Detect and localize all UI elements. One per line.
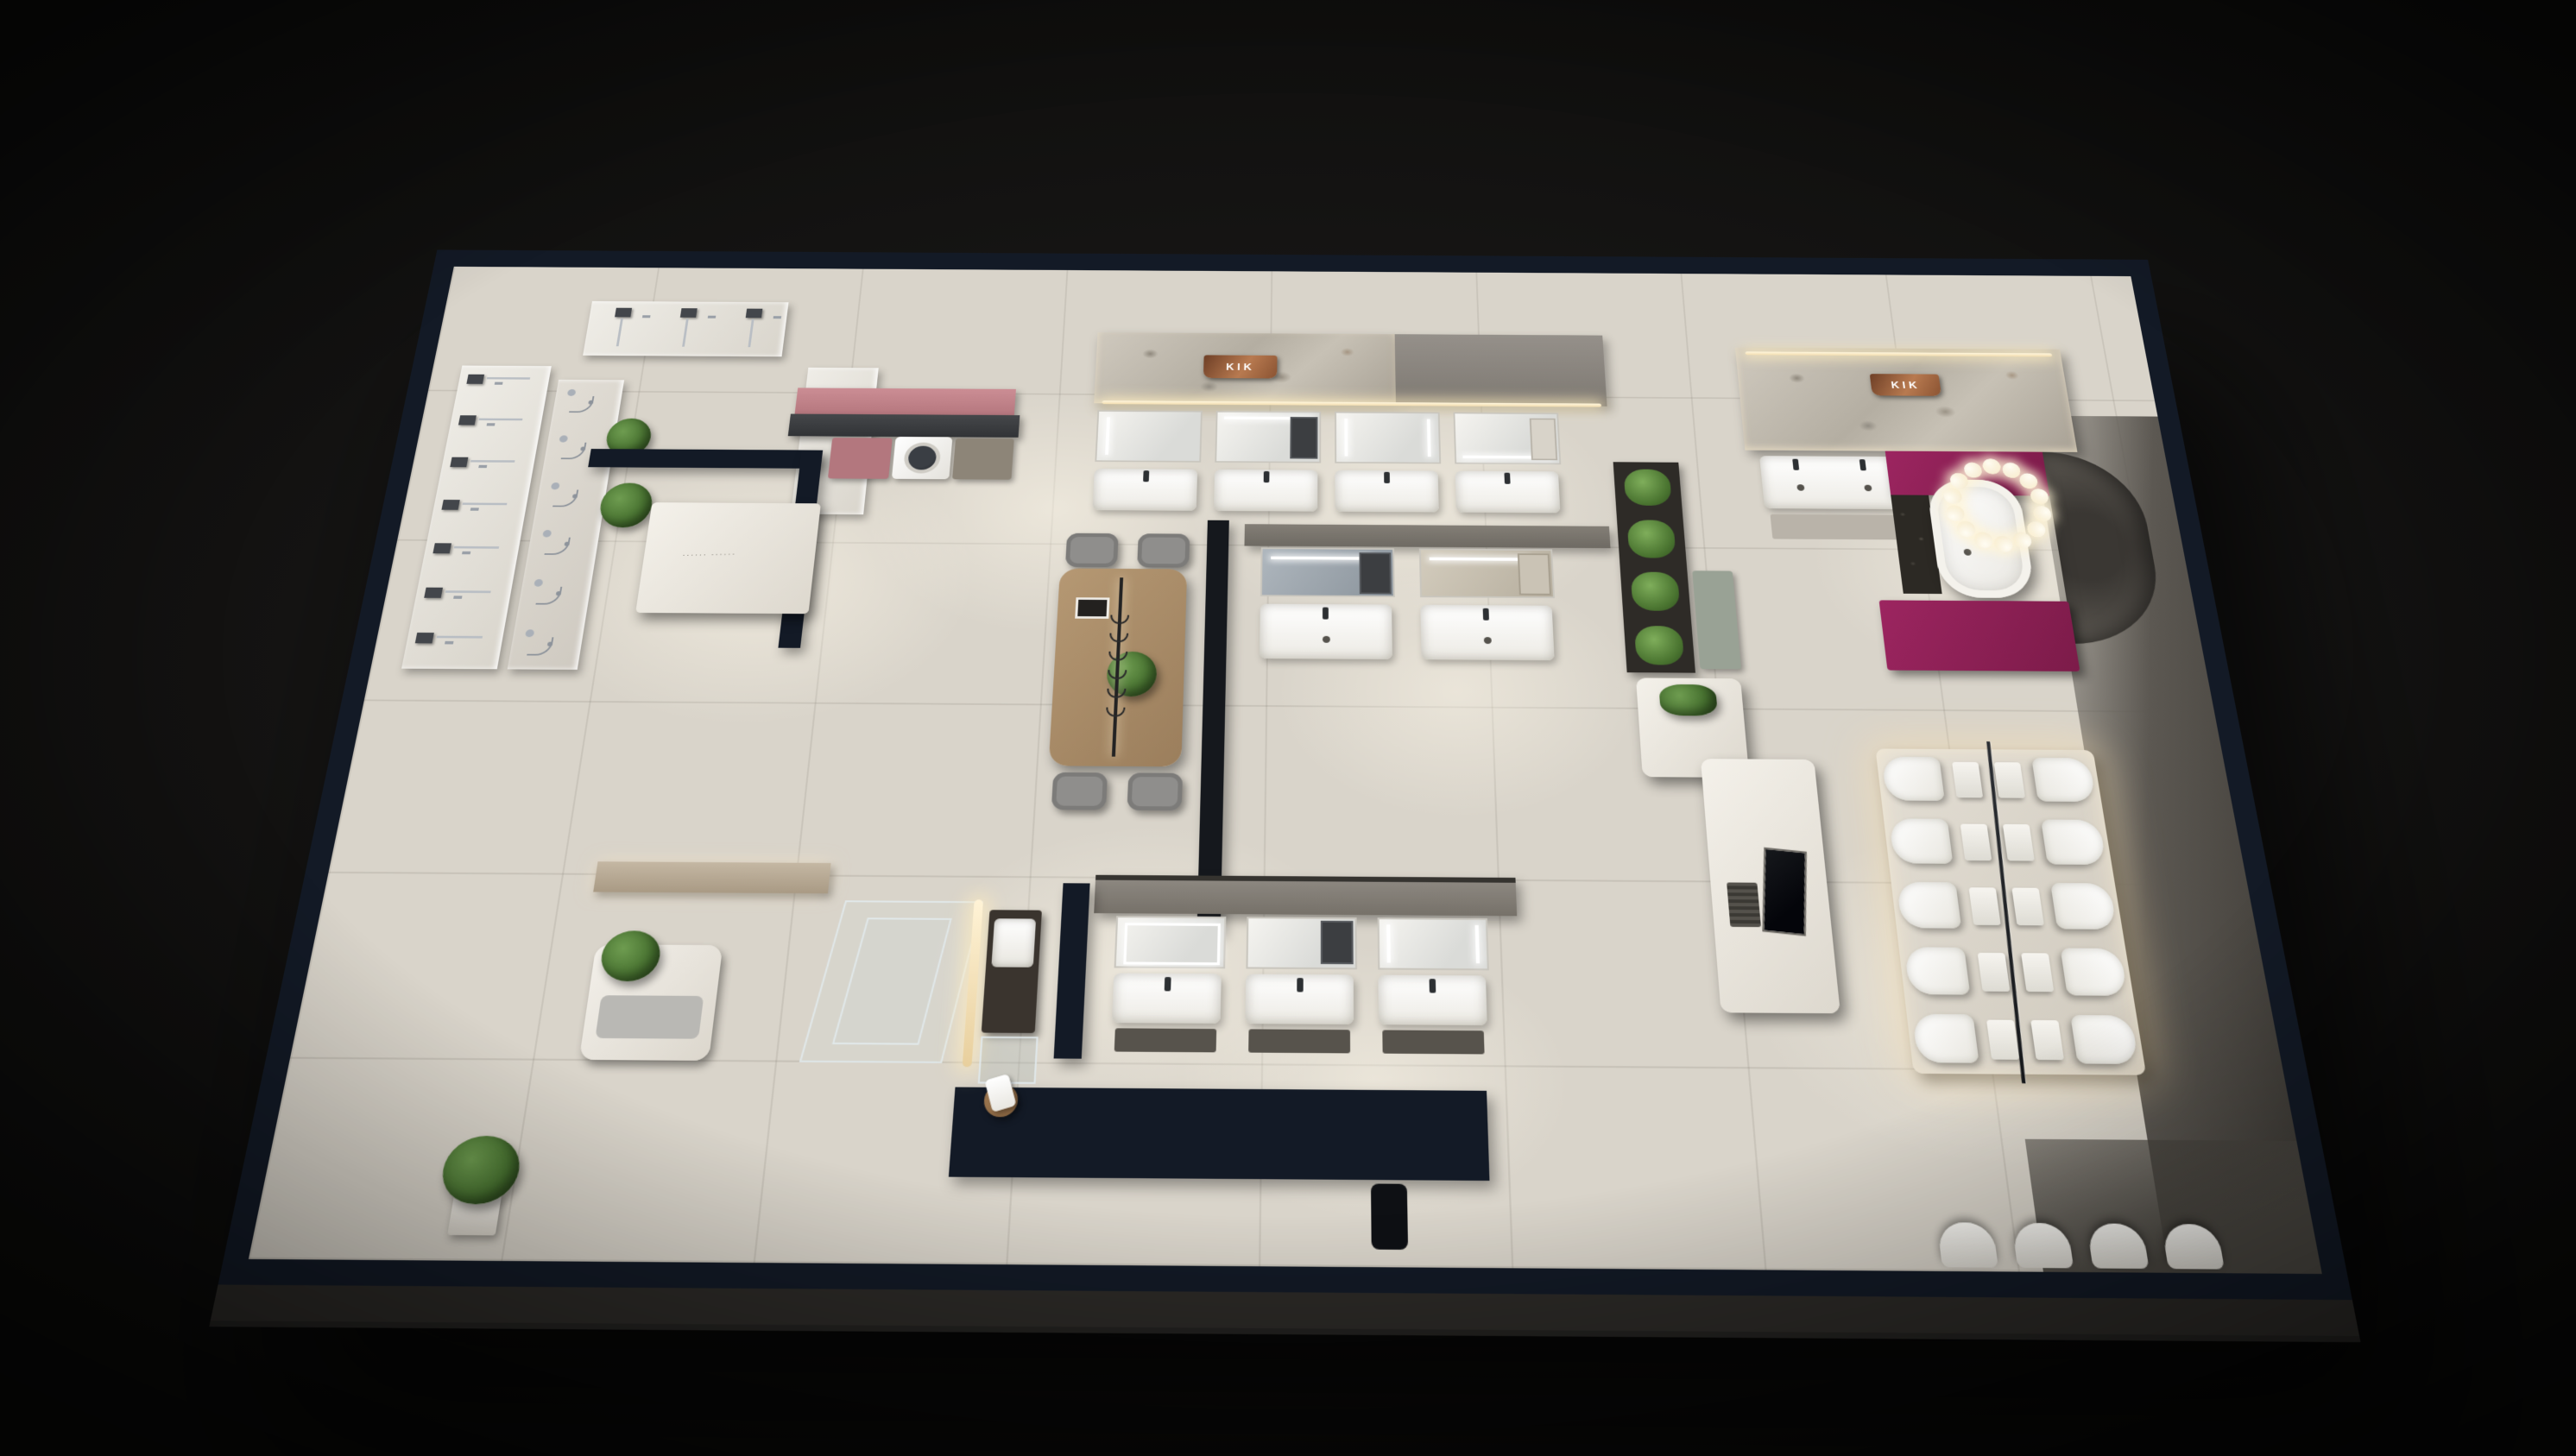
island-partition-wall: [1244, 524, 1610, 548]
mirror-led-frame-icon: [1123, 923, 1221, 965]
floor-plan: ······ ······ KIK: [218, 249, 2352, 1300]
toilet: [2004, 881, 2118, 933]
vanity-basin: [991, 918, 1036, 968]
vanity-cabinet: [1114, 1028, 1216, 1052]
chair: [1065, 533, 1119, 567]
lower-gallery-wall: [1094, 875, 1517, 917]
wall-hung-toilet: [2087, 1223, 2150, 1269]
wall-hung-toilet: [2161, 1224, 2224, 1270]
toilet: [1889, 816, 2000, 867]
partition-wall-top: [588, 449, 823, 469]
toilet-bowl-icon: [1897, 882, 1961, 929]
toilet-tank-icon: [1960, 824, 1992, 861]
toilet-tank-icon: [1986, 1020, 2019, 1060]
pendant-hook-icon: [1108, 652, 1127, 661]
faucet-icon: [1430, 979, 1436, 993]
toilet-tank-icon: [1978, 953, 2011, 992]
shower-station: [590, 301, 650, 356]
gray-gallery-wall: [1395, 334, 1607, 407]
marble-feature-wall: [1735, 348, 2077, 452]
vanity-mirror: [1095, 410, 1203, 462]
chandelier-bulb-icon: [1981, 458, 2002, 474]
pendant-hook-icon: [1109, 633, 1128, 643]
wall-hung-toilet: [2011, 1223, 2074, 1269]
vanity-display-unit: [1214, 411, 1321, 517]
faucet-icon: [1504, 473, 1510, 484]
mirror-led-icon: [1344, 419, 1348, 457]
faucet-icon: [1323, 608, 1329, 620]
brand-sign-text: KIK: [1226, 362, 1255, 373]
toilet-tank-icon: [2011, 888, 2044, 926]
vanity-mirror: [1378, 917, 1489, 970]
drain-icon: [1796, 484, 1804, 490]
vanity-display-unit: [1453, 413, 1563, 519]
vanity-cabinet: [1382, 1030, 1484, 1054]
shower-station: [723, 302, 781, 356]
toilet: [1904, 945, 2019, 999]
toilet-bowl-icon: [2070, 1015, 2139, 1064]
toilet: [1912, 1012, 2028, 1068]
vanity-mirror: [1114, 916, 1227, 968]
island-vanity-blue: [1260, 547, 1397, 675]
hand-shower-set: [534, 475, 609, 517]
washing-machine: [892, 437, 953, 479]
shower-station: [446, 410, 544, 445]
shower-station: [420, 537, 521, 574]
mirror-led-icon: [1475, 925, 1481, 963]
shower-station: [657, 301, 716, 356]
chandelier-bulb-icon: [1943, 487, 1963, 506]
mirror-led-icon: [1105, 417, 1110, 455]
mirror-led-icon: [1386, 924, 1391, 962]
vanity-cabinet: [1248, 1029, 1350, 1053]
toilet-bowl-icon: [2031, 758, 2096, 802]
chandelier-bulb-list: [1937, 458, 2059, 552]
side-shelf: [1290, 417, 1317, 459]
chandelier-bulb-icon: [1993, 536, 2014, 552]
taupe-cabinet: [952, 438, 1014, 480]
ring-chandelier: [1937, 458, 2059, 552]
toilet-bowl-icon: [2061, 948, 2128, 995]
mirror-led-icon: [1430, 558, 1528, 561]
island-vanity-beige: [1419, 548, 1559, 676]
shower-station: [429, 494, 528, 530]
reception-desk: ······ ······: [635, 502, 821, 614]
hand-shower-set: [551, 382, 623, 423]
laundry-countertop: [788, 414, 1020, 438]
pendant-hook-icon: [1110, 615, 1129, 625]
vanity-display-unit: [1245, 917, 1358, 1059]
bench-cushion: [595, 995, 704, 1039]
toilet-tank-icon: [2030, 1020, 2064, 1060]
toilet-tank-icon: [1952, 762, 1983, 797]
plant-tuft-icon: [1631, 572, 1681, 611]
plant-tuft-icon: [1624, 470, 1672, 507]
shower-station: [402, 627, 505, 665]
hand-shower-set: [517, 571, 593, 615]
faucet-icon: [1792, 459, 1799, 470]
rear-wall-toilet-row: [1937, 1222, 2225, 1269]
floor: ······ ······ KIK: [249, 267, 2322, 1274]
chair: [1127, 772, 1183, 810]
magenta-credenza: [1879, 600, 2080, 671]
pendant-hook-icon: [1106, 708, 1125, 717]
side-shelf: [1359, 552, 1391, 594]
plant-tuft-icon: [1627, 520, 1676, 558]
chandelier-bulb-icon: [2028, 487, 2051, 506]
side-shelf: [1321, 921, 1354, 964]
faucet-icon: [1384, 472, 1390, 483]
plant-tuft-icon: [1634, 626, 1685, 665]
drain-icon: [1484, 637, 1492, 644]
vanity-display-unit: [1110, 916, 1226, 1057]
reception-desk-tagline: ······ ······: [682, 550, 736, 558]
toilet: [1995, 817, 2107, 868]
mirror-led-icon: [1427, 419, 1431, 457]
toilet: [1897, 880, 2010, 932]
vanity-mirror: [1335, 412, 1441, 463]
toilet-bowl-icon: [1912, 1014, 1979, 1063]
shower-station: [438, 451, 536, 488]
toilet-tank-icon: [2021, 953, 2054, 992]
dark-vanity-cabinet: [982, 910, 1042, 1033]
toilet-bowl-icon: [1889, 818, 1953, 863]
toilet: [1986, 756, 2096, 805]
shower-station: [455, 369, 551, 403]
faucet-icon: [1483, 608, 1489, 621]
vanity-display-unit: [1378, 917, 1493, 1060]
side-shelf: [1530, 419, 1558, 461]
toilet-bowl-icon: [2050, 883, 2117, 930]
toilet-bowl-icon: [1882, 757, 1945, 801]
beige-accent-wall: [593, 861, 830, 893]
pendant-hook-icon: [1108, 670, 1127, 679]
chair: [1137, 533, 1190, 567]
vanity-display-unit: [1335, 412, 1443, 518]
faucet-icon: [1165, 977, 1171, 991]
toilet: [2023, 1013, 2140, 1068]
toilet-tank-icon: [2003, 824, 2035, 861]
corner-shower-display: [583, 301, 788, 356]
display-bench: [579, 944, 723, 1061]
faucet-icon: [1143, 470, 1149, 482]
keypad-panel: [1727, 882, 1761, 927]
toilet-bowl-icon: [2041, 819, 2106, 864]
toilet-tank-icon: [1994, 762, 2025, 798]
catalog-book: [1077, 600, 1107, 616]
pink-cabinet: [828, 438, 893, 479]
pendant-hook-icon: [1107, 689, 1126, 698]
vanity-display-unit: [1092, 410, 1203, 516]
brand-sign: KIK: [1203, 355, 1278, 378]
vanity-cabinet: [1771, 514, 1910, 540]
faucet-icon: [1297, 978, 1303, 992]
brand-sign: KIK: [1870, 374, 1941, 396]
toilet: [2013, 946, 2129, 999]
planter-greens-icon: [1658, 684, 1718, 716]
brand-sign-text: KIK: [1891, 380, 1921, 391]
wall-hung-toilet: [1937, 1222, 1998, 1268]
toilet-tank-icon: [1969, 887, 2001, 925]
side-shelf: [1518, 553, 1551, 595]
corridor-wall-top: [949, 1087, 1490, 1181]
black-pedestal: [1371, 1183, 1408, 1249]
mirror-led-icon: [1271, 557, 1369, 560]
washer-door-icon: [907, 446, 938, 470]
chair: [1051, 772, 1108, 810]
display-screen: [1762, 848, 1807, 936]
pink-laundry-wall: [795, 388, 1016, 415]
corner-shower-list: [583, 301, 788, 356]
showroom-scene: ······ ······ KIK: [0, 0, 2576, 1456]
shower-station: [412, 582, 513, 620]
hand-shower-set: [526, 523, 601, 566]
toilet-bowl-icon: [1904, 947, 1971, 994]
toilet: [1881, 755, 1991, 804]
faucet-icon: [1264, 471, 1270, 482]
drain-icon: [1323, 636, 1330, 643]
drain-icon: [1864, 485, 1872, 491]
hand-shower-set: [508, 621, 584, 666]
